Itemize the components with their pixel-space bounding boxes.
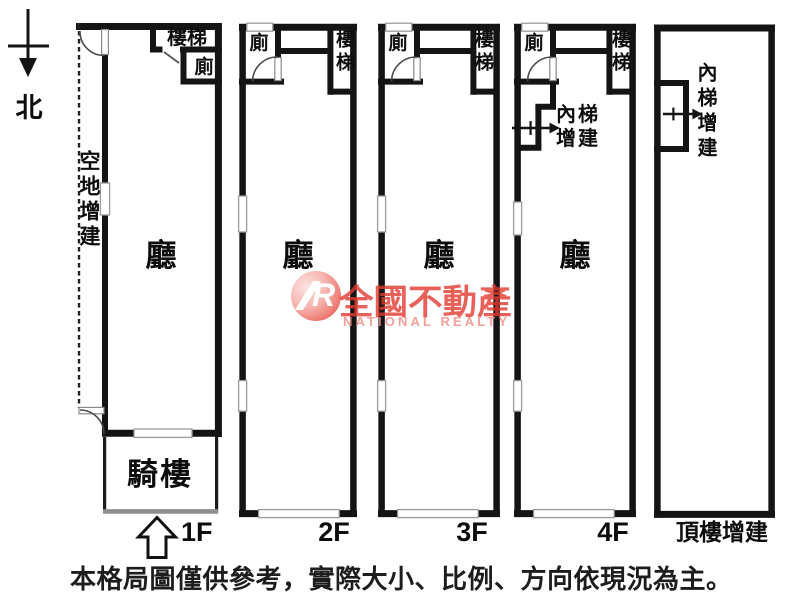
window-marker [134,429,192,437]
door-arc-icon [392,57,417,82]
label-4f-stairs: 樓梯 [609,29,629,75]
label-4f-hall: 廳 [545,240,605,273]
label-4f-inner-stair-line1: 內梯 [556,105,600,126]
label-roof-floor: 頂樓增建 [669,520,775,544]
floor-plan-diagram: 北 空地增建 樓梯 廁 廳 騎樓 1F 廁 樓梯 廳 2F 廁 樓梯 廳 3F … [0,0,800,609]
label-1f-hall: 廳 [131,240,191,273]
label-1f-floor: 1F [181,518,221,546]
label-roof-inner-stair: 內梯增建 [694,62,715,162]
door-arc-icon [80,31,105,56]
label-1f-arcade: 騎樓 [108,459,212,492]
door-arc-icon [253,57,278,82]
window-marker [386,23,412,31]
label-1f-toilet: 廁 [191,58,217,78]
north-arrow-icon [8,9,49,77]
window-marker [378,381,386,412]
logo-letter: R [312,277,335,314]
label-3f-stairs: 樓梯 [472,29,492,75]
label-2f-hall: 廳 [268,240,328,273]
label-1f-side-yard: 空地增建 [77,150,99,250]
window-marker [239,381,247,412]
window-marker [100,183,109,215]
disclaimer-text: 本格局圖僅供參考，實際大小、比例、方向依現況為主。 [70,559,733,596]
label-1f-stairs: 樓梯 [158,28,216,49]
window-marker [514,202,522,235]
watermark-subtitle: NATIONAL REALTY [343,314,510,329]
window-marker [247,23,273,31]
entrance-arrow-icon [139,518,176,558]
label-2f-stairs: 樓梯 [333,29,353,75]
label-3f-floor: 3F [452,518,492,546]
label-3f-hall: 廳 [409,240,469,273]
label-4f-inner-stair-line2: 增建 [556,129,600,150]
window-marker [514,381,522,412]
door-leaf-icon [164,52,179,63]
door-arc-icon [528,57,553,82]
label-2f-toilet: 廁 [246,34,272,54]
north-label: 北 [12,94,46,122]
window-marker [378,196,386,232]
label-4f-floor: 4F [593,518,633,546]
national-realty-logo: R [291,271,341,321]
label-2f-floor: 2F [314,518,354,546]
window-marker [239,196,247,232]
label-3f-toilet: 廁 [385,34,411,54]
label-4f-toilet: 廁 [521,34,547,54]
window-marker [522,23,548,31]
